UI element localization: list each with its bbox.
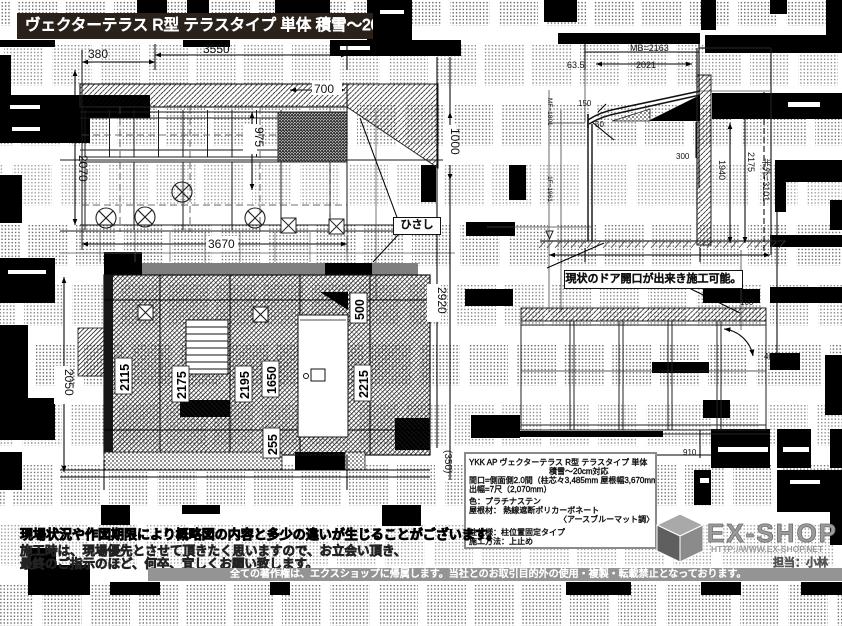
svg-text:300: 300 — [676, 152, 690, 161]
svg-text:2195: 2195 — [238, 371, 252, 399]
svg-text:975: 975 — [252, 127, 266, 147]
svg-text:100: 100 — [740, 298, 754, 307]
svg-text:63.5: 63.5 — [567, 60, 585, 70]
svg-text:3550: 3550 — [203, 42, 230, 56]
svg-text:MF=1801: MF=1801 — [546, 98, 553, 126]
svg-text:MB=2163: MB=2163 — [630, 43, 669, 53]
svg-text:255: 255 — [266, 434, 280, 455]
svg-text:40: 40 — [764, 352, 773, 361]
svg-text:1940: 1940 — [717, 160, 727, 180]
svg-text:HTTP://WWW.EX-SHOP.NET: HTTP://WWW.EX-SHOP.NET — [711, 544, 824, 554]
svg-text:担当：小林: 担当：小林 — [773, 555, 828, 569]
svg-text:50: 50 — [595, 120, 604, 129]
svg-text:1650: 1650 — [265, 366, 279, 394]
svg-text:1F=1961: 1F=1961 — [546, 176, 553, 202]
svg-text:(350): (350) — [442, 450, 453, 473]
svg-text:1000: 1000 — [448, 128, 462, 155]
svg-text:2175: 2175 — [746, 152, 756, 172]
svg-text:910: 910 — [683, 448, 697, 457]
svg-text:500: 500 — [353, 299, 367, 320]
svg-text:700: 700 — [314, 82, 334, 96]
svg-text:2920: 2920 — [435, 287, 449, 314]
svg-text:380: 380 — [88, 47, 108, 61]
svg-text:2050: 2050 — [62, 369, 76, 396]
svg-text:2215: 2215 — [357, 370, 371, 398]
svg-text:2175: 2175 — [175, 371, 189, 399]
svg-text:半外=3101: 半外=3101 — [761, 158, 772, 201]
svg-text:2115: 2115 — [118, 364, 132, 391]
svg-text:3670: 3670 — [208, 237, 235, 251]
svg-text:2070: 2070 — [76, 155, 90, 182]
svg-text:2021: 2021 — [636, 60, 656, 70]
